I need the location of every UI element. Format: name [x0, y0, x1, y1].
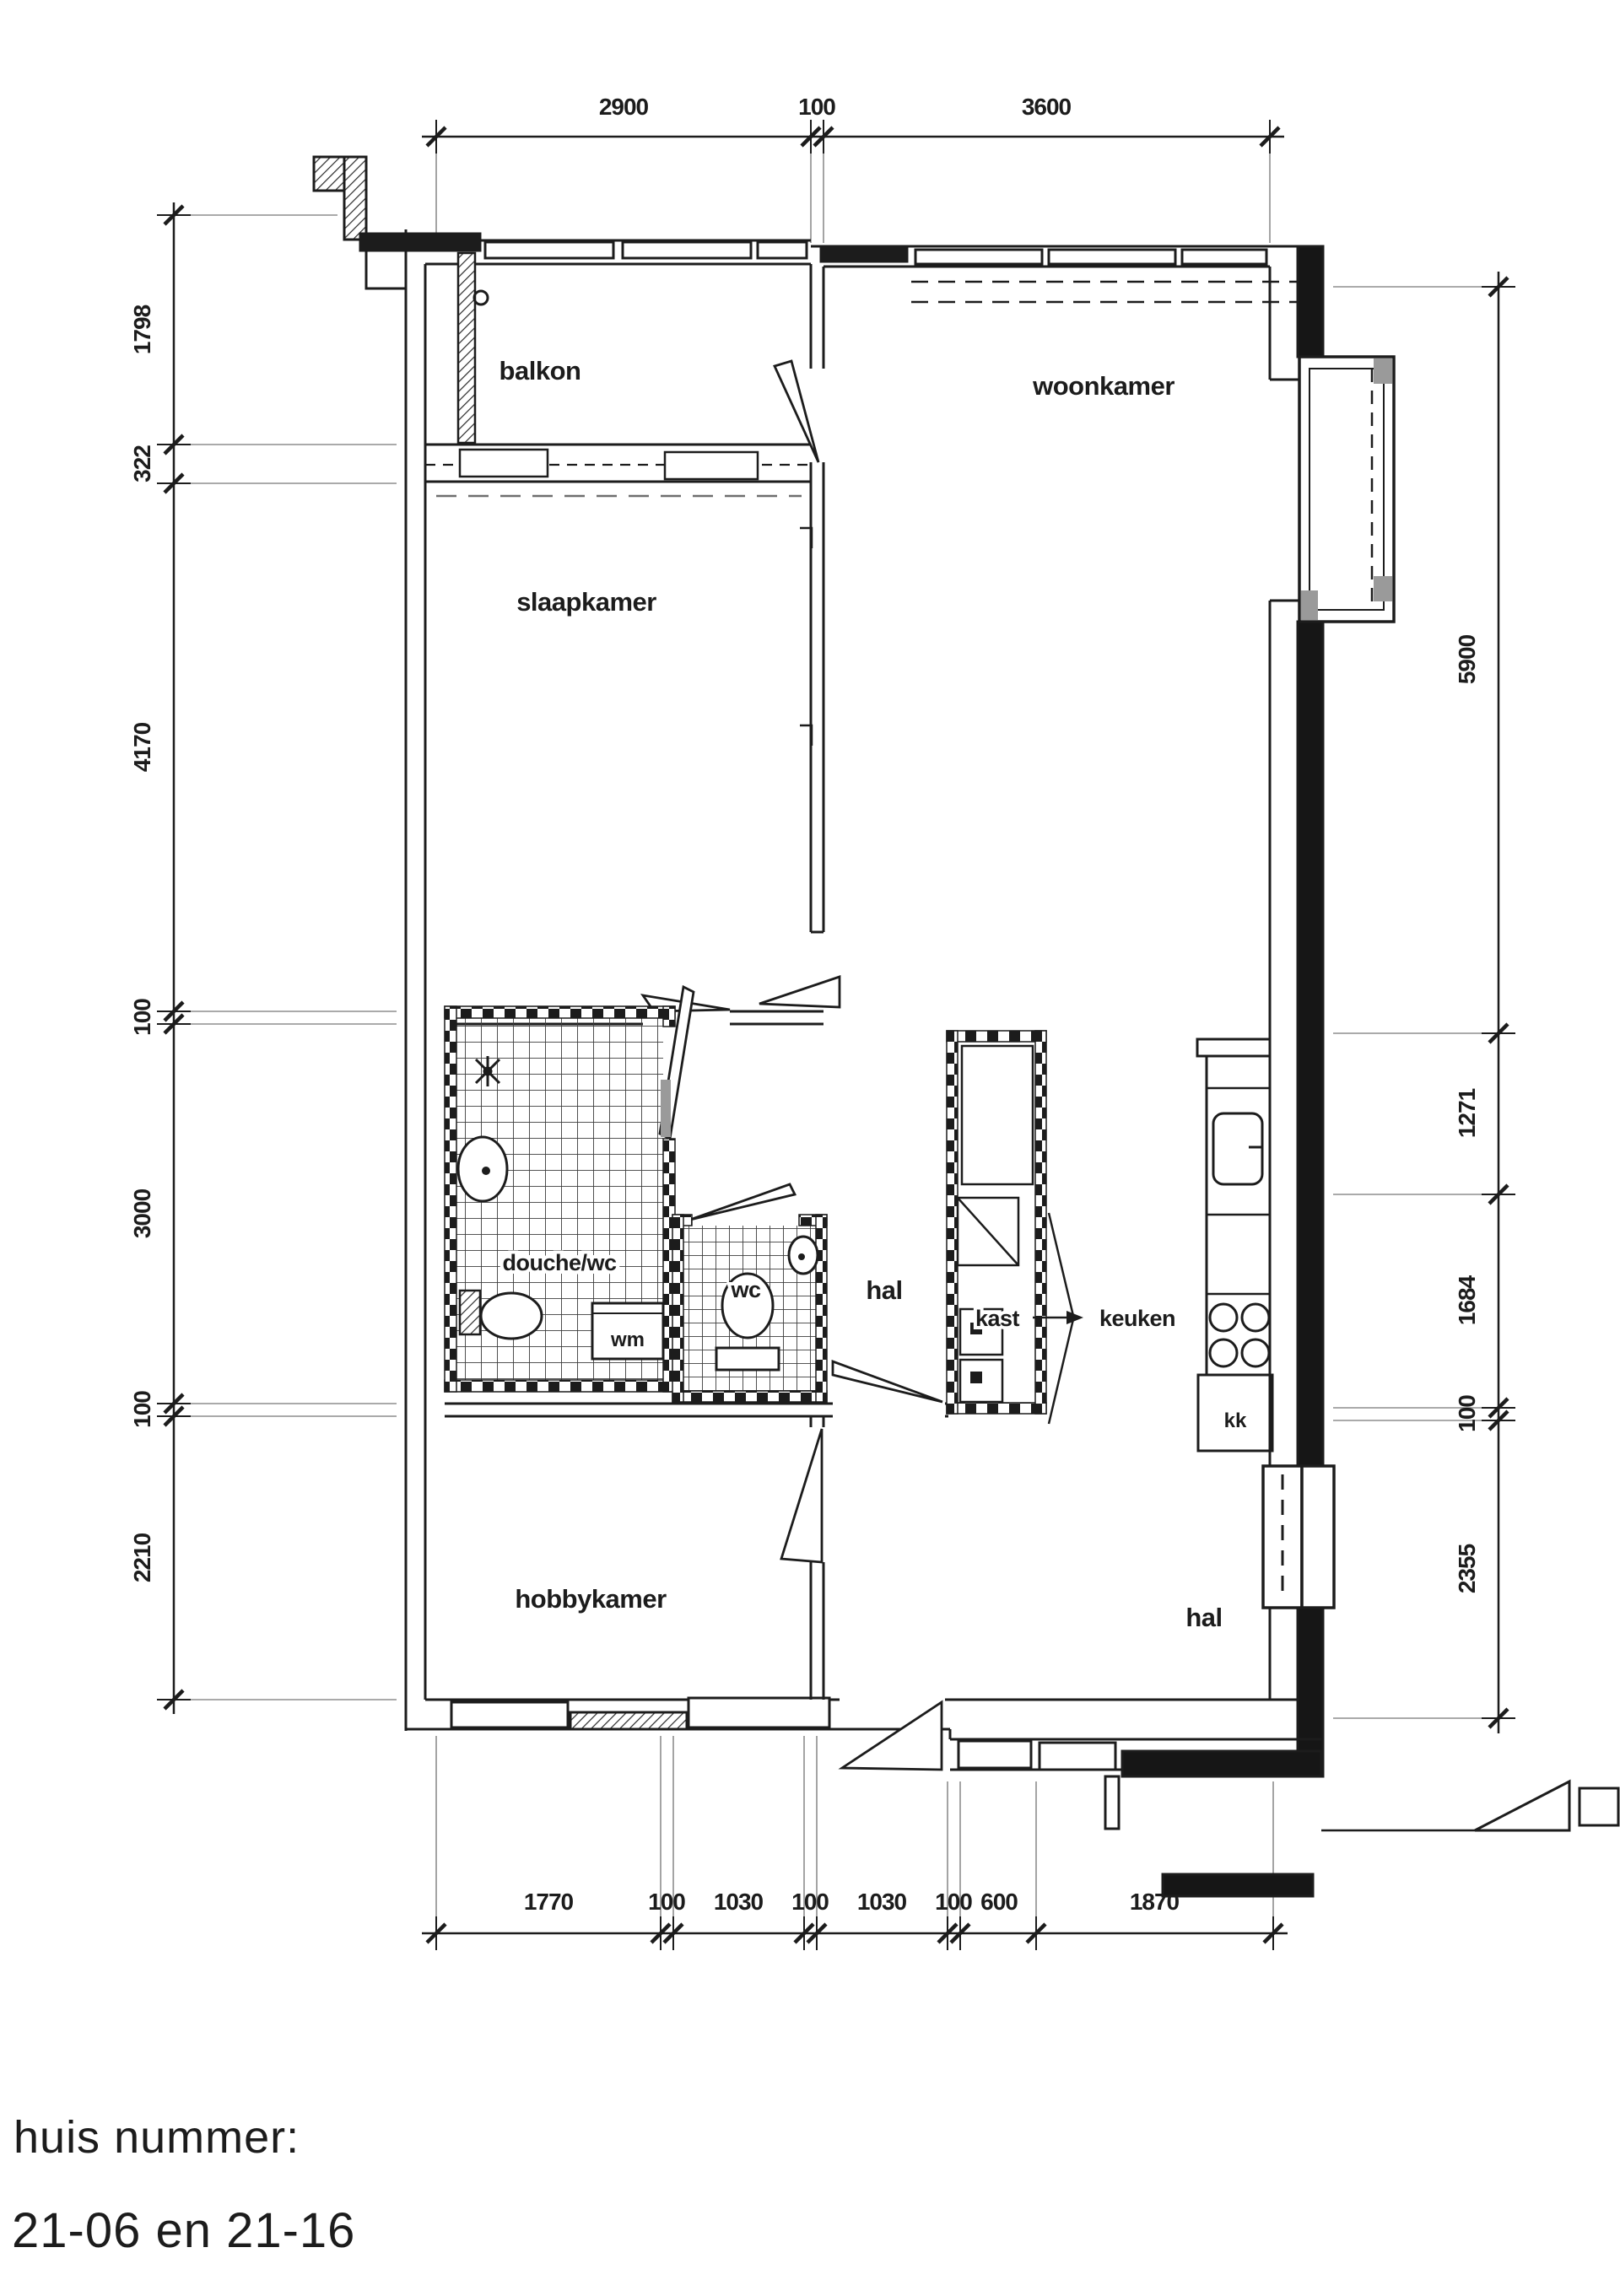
dim-top-100: 100 — [798, 94, 835, 120]
floorplan-page: 2900 100 3600 1770 100 1030 100 1030 100… — [0, 0, 1620, 2296]
footer-text: huis nummer: 21-06 en 21-16 — [12, 2112, 355, 2258]
kast-closet — [947, 1031, 1083, 1424]
dim-bottom-100c: 100 — [935, 1889, 972, 1915]
room-label-hobbykamer: hobbykamer — [515, 1584, 667, 1614]
keuken-arrow-icon — [1066, 1311, 1083, 1324]
dim-left-3000: 3000 — [129, 1188, 155, 1238]
room-label-keuken: keuken — [1099, 1306, 1175, 1331]
dim-bottom-600: 600 — [980, 1889, 1018, 1915]
room-label-wc: wc — [730, 1277, 761, 1302]
fixture-label-kk: kk — [1224, 1409, 1247, 1432]
kitchen-sink-icon — [1213, 1113, 1262, 1184]
dim-bottom-1030a: 1030 — [714, 1889, 764, 1915]
dim-right-100: 100 — [1454, 1395, 1480, 1432]
room-label-douche-wc: douche/wc — [502, 1250, 617, 1275]
floorplan-svg: 2900 100 3600 1770 100 1030 100 1030 100… — [0, 0, 1620, 2296]
hal-connecting-door — [833, 1361, 942, 1402]
room-label-hal-mid: hal — [866, 1275, 902, 1305]
dim-bottom-100b: 100 — [791, 1889, 829, 1915]
dim-top-2900: 2900 — [599, 94, 649, 120]
balkon-area — [425, 253, 811, 496]
keuken-counter — [1197, 1039, 1272, 1451]
dimension-line-top: 2900 100 3600 — [422, 94, 1284, 154]
wc-room — [672, 1215, 827, 1402]
room-labels: balkon woonkamer slaapkamer douche/wc wc… — [499, 356, 1247, 1632]
room-label-slaapkamer: slaapkamer — [516, 587, 656, 617]
woonkamer-door — [759, 977, 840, 1007]
stove-icon — [1210, 1304, 1269, 1366]
dim-right-5900: 5900 — [1454, 634, 1480, 684]
hobbykamer-door — [781, 1429, 822, 1562]
witness-lines — [187, 150, 1485, 1920]
dimension-line-left: 1798 322 4170 100 3000 100 2210 — [129, 202, 191, 1714]
bay-window — [1270, 357, 1394, 622]
dimension-line-bottom: 1770 100 1030 100 1030 100 600 1870 — [422, 1889, 1288, 1950]
dim-left-4170: 4170 — [129, 722, 155, 772]
room-label-woonkamer: woonkamer — [1032, 371, 1174, 401]
footer-line1: huis nummer: — [13, 2112, 300, 2163]
toilet-bowl-icon — [481, 1293, 542, 1339]
footer-line2: 21-06 en 21-16 — [12, 2203, 355, 2258]
room-label-hal-bottom: hal — [1185, 1603, 1222, 1632]
door-leaves — [643, 361, 942, 1770]
dim-left-322: 322 — [129, 445, 155, 482]
dim-left-100a: 100 — [129, 999, 155, 1036]
room-label-kast: kast — [975, 1306, 1020, 1331]
wc-toilet-cistern-icon — [716, 1348, 779, 1370]
fixture-label-wm: wm — [610, 1329, 645, 1351]
dim-right-1684: 1684 — [1454, 1275, 1480, 1325]
dimension-line-right: 5900 1271 1684 100 2355 — [1454, 272, 1515, 1733]
dim-left-100b: 100 — [129, 1391, 155, 1428]
dim-bottom-100a: 100 — [648, 1889, 685, 1915]
dim-bottom-1770: 1770 — [524, 1889, 574, 1915]
dim-bottom-1030b: 1030 — [857, 1889, 907, 1915]
dim-left-1798: 1798 — [129, 305, 155, 354]
room-label-balkon: balkon — [499, 356, 581, 385]
dim-right-1271: 1271 — [1454, 1088, 1480, 1138]
balkon-door — [775, 361, 818, 462]
utility-shaft — [1263, 1466, 1334, 1608]
toilet-cistern-icon — [460, 1291, 480, 1334]
wc-door — [690, 1184, 795, 1220]
dim-top-3600: 3600 — [1022, 94, 1072, 120]
dim-left-2210: 2210 — [129, 1533, 155, 1582]
entry-door — [842, 1702, 942, 1770]
dim-right-2355: 2355 — [1454, 1544, 1480, 1593]
